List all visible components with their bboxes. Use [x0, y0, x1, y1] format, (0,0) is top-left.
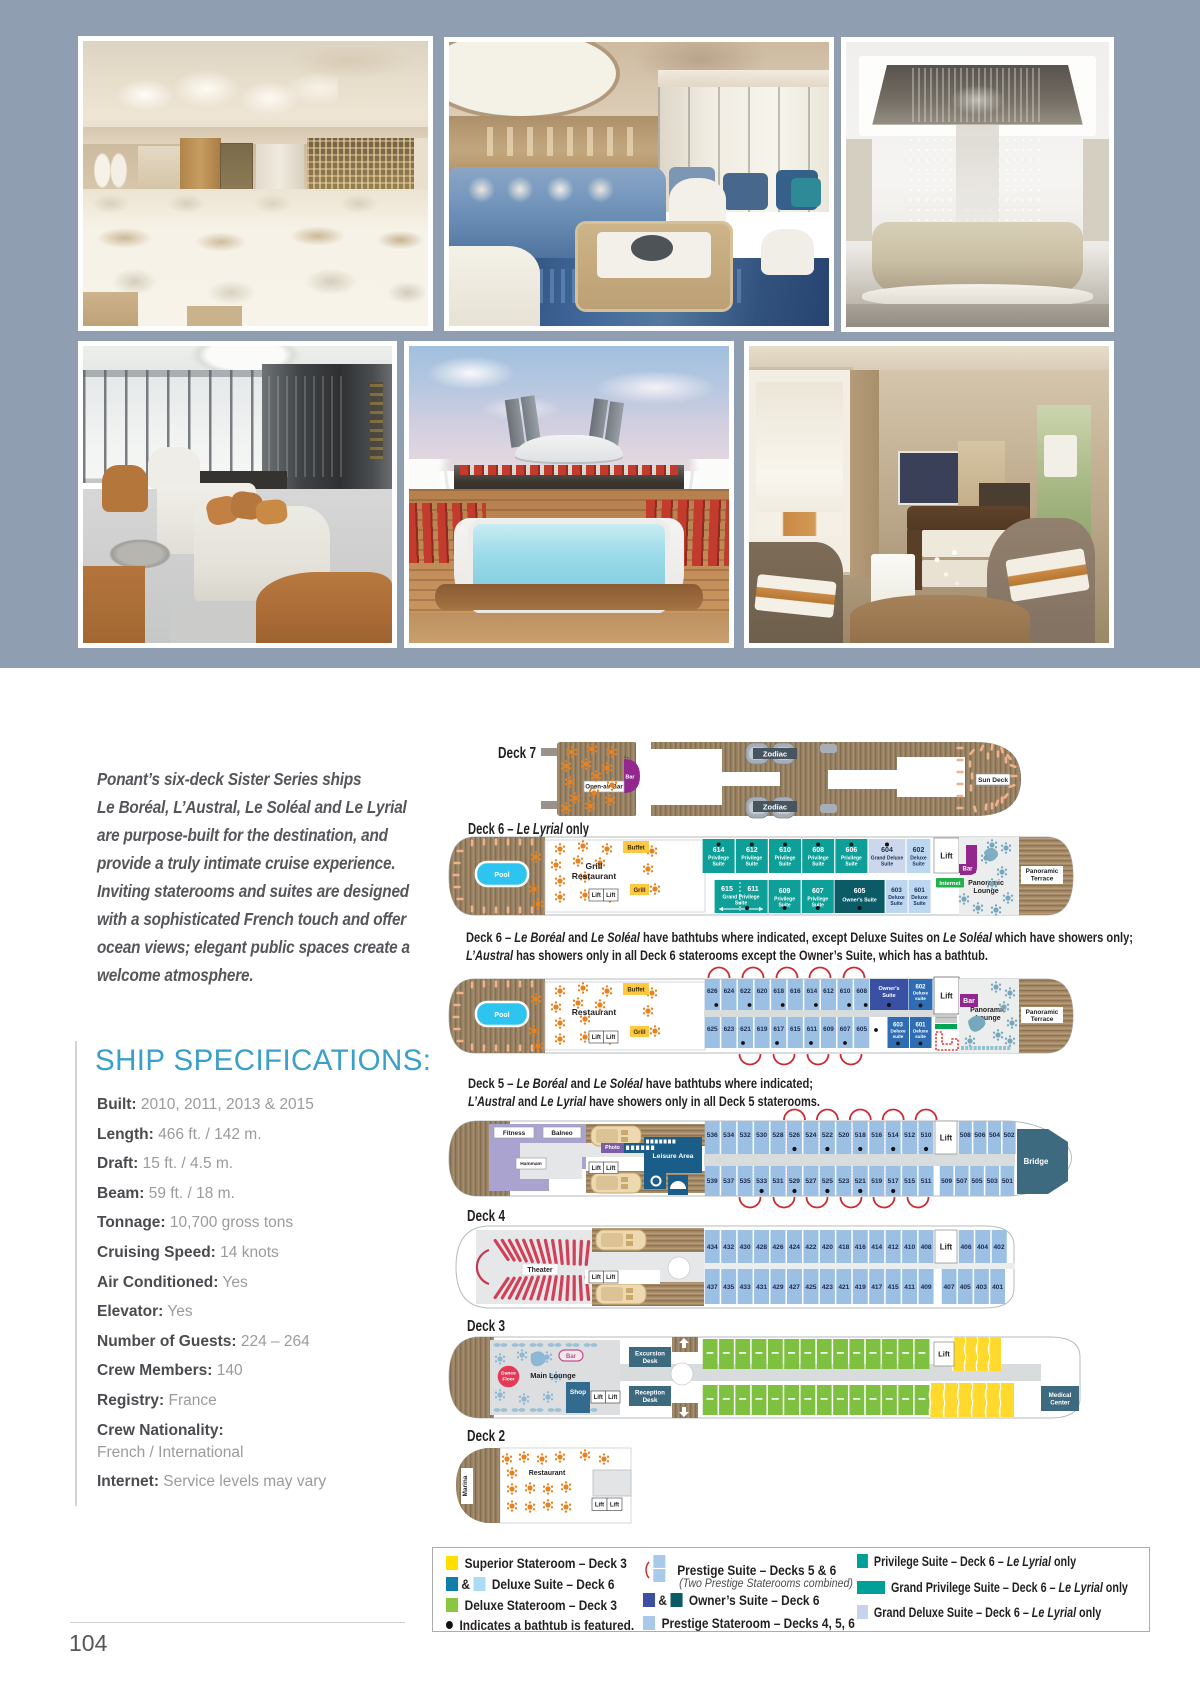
svg-text:Balneo: Balneo: [551, 1130, 572, 1137]
svg-text:619: 619: [757, 1026, 768, 1033]
svg-text:L’Austral has showers only in: L’Austral has showers only in all Deck 6…: [466, 948, 988, 963]
svg-text:Suite: Suite: [779, 862, 791, 868]
svg-text:Suite: Suite: [912, 862, 924, 868]
svg-text:Lift: Lift: [606, 893, 615, 899]
svg-text:512: 512: [904, 1132, 915, 1139]
svg-text:511: 511: [921, 1178, 932, 1185]
svg-text:Pool: Pool: [494, 1012, 509, 1019]
svg-text:Panoramic: Panoramic: [968, 880, 1004, 887]
svg-text:Theater: Theater: [527, 1267, 553, 1274]
svg-text:507: 507: [956, 1178, 967, 1185]
svg-text:528: 528: [773, 1132, 784, 1139]
svg-text:Desk: Desk: [643, 1358, 658, 1365]
svg-text:621: 621: [740, 1026, 751, 1033]
svg-text:503: 503: [987, 1178, 998, 1185]
svg-text:405: 405: [960, 1284, 971, 1291]
svg-text:610: 610: [840, 988, 851, 995]
svg-text:408: 408: [921, 1244, 932, 1251]
svg-text:608: 608: [856, 988, 867, 995]
svg-text:508: 508: [960, 1132, 971, 1139]
svg-text:623: 623: [724, 1026, 735, 1033]
svg-text:403: 403: [976, 1284, 987, 1291]
svg-text:Lift: Lift: [592, 1166, 601, 1172]
svg-text:Lift: Lift: [940, 1242, 953, 1251]
svg-text:Buffet: Buffet: [627, 846, 644, 852]
svg-text:604: 604: [881, 847, 893, 854]
svg-text:515: 515: [904, 1178, 915, 1185]
svg-text:514: 514: [888, 1132, 899, 1139]
svg-text:501: 501: [1002, 1178, 1013, 1185]
svg-text:524: 524: [805, 1132, 816, 1139]
svg-text:434: 434: [707, 1244, 718, 1251]
svg-text:Lift: Lift: [940, 991, 953, 1000]
svg-text:617: 617: [773, 1026, 784, 1033]
svg-text:L’Austral and Le Lyrial have s: L’Austral and Le Lyrial have showers onl…: [468, 1094, 820, 1109]
svg-text:Bar: Bar: [963, 998, 975, 1005]
svg-text:Restaurant: Restaurant: [529, 1470, 566, 1477]
svg-text:Deck 6 – Le Boréal and Le Solé: Deck 6 – Le Boréal and Le Soléal have ba…: [466, 930, 1133, 945]
svg-text:Lift: Lift: [940, 851, 953, 860]
svg-text:504: 504: [989, 1132, 1000, 1139]
svg-text:521: 521: [855, 1178, 866, 1185]
svg-text:Pool: Pool: [494, 872, 509, 879]
svg-text:Deluxe: Deluxe: [890, 1029, 906, 1034]
svg-text:Terrace: Terrace: [1031, 876, 1054, 883]
svg-text:435: 435: [723, 1284, 734, 1291]
svg-text:432: 432: [723, 1244, 734, 1251]
svg-text:Excursion: Excursion: [635, 1350, 665, 1357]
svg-text:suite: suite: [915, 1034, 926, 1039]
svg-text:607: 607: [840, 1026, 851, 1033]
svg-text:Suite: Suite: [712, 862, 724, 868]
svg-text:535: 535: [740, 1178, 751, 1185]
svg-text:Restaurant: Restaurant: [572, 871, 617, 881]
svg-text:411: 411: [904, 1284, 915, 1291]
svg-text:424: 424: [789, 1244, 800, 1251]
svg-text:533: 533: [756, 1178, 767, 1185]
svg-text:517: 517: [888, 1178, 899, 1185]
svg-text:522: 522: [822, 1132, 833, 1139]
svg-text:624: 624: [724, 988, 735, 995]
svg-text:Deck 3: Deck 3: [467, 1318, 505, 1335]
svg-text:Lift: Lift: [610, 1502, 619, 1508]
svg-text:518: 518: [855, 1132, 866, 1139]
svg-text:611: 611: [747, 886, 758, 893]
svg-text:519: 519: [871, 1178, 882, 1185]
svg-text:Suite: Suite: [913, 901, 925, 907]
svg-text:420: 420: [822, 1244, 833, 1251]
svg-text:607: 607: [812, 888, 824, 895]
svg-text:Main Lounge: Main Lounge: [530, 1371, 576, 1380]
svg-text:Panoramic: Panoramic: [1026, 868, 1059, 875]
svg-text:622: 622: [740, 988, 751, 995]
svg-text:510: 510: [921, 1132, 932, 1139]
svg-text:Suite: Suite: [735, 901, 747, 907]
svg-text:418: 418: [838, 1244, 849, 1251]
svg-text:414: 414: [871, 1244, 882, 1251]
svg-text:602: 602: [913, 847, 925, 854]
svg-text:Deluxe: Deluxe: [913, 991, 929, 996]
svg-text:Grill: Grill: [633, 1030, 645, 1036]
svg-text:610: 610: [779, 847, 791, 854]
svg-text:Terrace: Terrace: [1031, 1016, 1054, 1023]
svg-text:Internet: Internet: [939, 881, 960, 887]
svg-text:suite: suite: [893, 1034, 904, 1039]
svg-text:609: 609: [823, 1026, 834, 1033]
svg-text:Lift: Lift: [594, 1395, 603, 1401]
svg-text:421: 421: [838, 1284, 849, 1291]
svg-text:527: 527: [805, 1178, 816, 1185]
svg-text:Suite: Suite: [882, 993, 895, 999]
svg-text:Sun Deck: Sun Deck: [978, 777, 1008, 784]
svg-text:404: 404: [977, 1244, 988, 1251]
svg-text:Deck 5 – Le Boréal and Le Solé: Deck 5 – Le Boréal and Le Soléal have ba…: [468, 1076, 813, 1091]
svg-text:616: 616: [790, 988, 801, 995]
svg-text:614: 614: [807, 988, 818, 995]
svg-text:516: 516: [871, 1132, 882, 1139]
svg-text:Bridge: Bridge: [1024, 1157, 1049, 1166]
svg-text:415: 415: [888, 1284, 899, 1291]
svg-text:Deck 2: Deck 2: [467, 1428, 505, 1445]
svg-text:539: 539: [707, 1178, 718, 1185]
svg-text:Deluxe: Deluxe: [913, 1029, 929, 1034]
svg-text:614: 614: [713, 847, 725, 854]
svg-text:419: 419: [855, 1284, 866, 1291]
svg-text:416: 416: [855, 1244, 866, 1251]
svg-text:603: 603: [891, 887, 902, 894]
svg-text:Grill: Grill: [585, 861, 602, 871]
svg-text:Lounge: Lounge: [973, 888, 998, 895]
svg-text:Hammam: Hammam: [520, 1161, 542, 1167]
svg-text:Lift: Lift: [592, 893, 601, 899]
svg-text:430: 430: [740, 1244, 751, 1251]
svg-text:Suite: Suite: [890, 901, 902, 907]
svg-text:401: 401: [992, 1284, 1003, 1291]
svg-text:410: 410: [904, 1244, 915, 1251]
svg-text:Medical: Medical: [1049, 1392, 1072, 1399]
svg-text:606: 606: [846, 847, 858, 854]
svg-text:Lift: Lift: [938, 1350, 950, 1359]
svg-text:423: 423: [822, 1284, 833, 1291]
svg-text:537: 537: [723, 1178, 734, 1185]
svg-text:Deck 6 – Le Lyrial only: Deck 6 – Le Lyrial only: [468, 821, 589, 838]
svg-text:Lift: Lift: [595, 1502, 604, 1508]
svg-text:suite: suite: [915, 996, 926, 1001]
svg-text:Marina: Marina: [462, 1475, 469, 1496]
svg-text:Reception: Reception: [635, 1389, 665, 1396]
svg-text:609: 609: [779, 888, 791, 895]
svg-text:505: 505: [971, 1178, 982, 1185]
svg-text:534: 534: [723, 1132, 734, 1139]
svg-text:625: 625: [707, 1026, 718, 1033]
svg-text:618: 618: [773, 988, 784, 995]
svg-text:Owner's Suite: Owner's Suite: [842, 898, 876, 904]
svg-text:Lift: Lift: [592, 1035, 601, 1041]
svg-text:520: 520: [838, 1132, 849, 1139]
svg-text:407: 407: [943, 1284, 954, 1291]
svg-text:Bar: Bar: [566, 1354, 577, 1360]
svg-text:402: 402: [993, 1244, 1004, 1251]
svg-text:529: 529: [789, 1178, 800, 1185]
svg-text:525: 525: [822, 1178, 833, 1185]
svg-text:615: 615: [721, 886, 733, 893]
svg-text:Suite: Suite: [881, 862, 893, 868]
svg-text:427: 427: [789, 1284, 800, 1291]
svg-text:431: 431: [756, 1284, 767, 1291]
svg-text:Photo: Photo: [605, 1145, 620, 1151]
svg-text:406: 406: [960, 1244, 971, 1251]
svg-text:Lift: Lift: [606, 1275, 615, 1281]
svg-text:428: 428: [756, 1244, 767, 1251]
svg-text:Owner's: Owner's: [878, 986, 899, 992]
svg-text:532: 532: [740, 1132, 751, 1139]
svg-text:Bar: Bar: [625, 775, 635, 781]
svg-text:437: 437: [707, 1284, 718, 1291]
svg-text:409: 409: [921, 1284, 932, 1291]
svg-text:Lift: Lift: [608, 1395, 617, 1401]
svg-text:530: 530: [756, 1132, 767, 1139]
svg-text:417: 417: [871, 1284, 882, 1291]
svg-text:Grill: Grill: [633, 888, 645, 894]
svg-text:425: 425: [805, 1284, 816, 1291]
svg-text:605: 605: [856, 1026, 867, 1033]
svg-text:502: 502: [1004, 1132, 1015, 1139]
svg-text:509: 509: [941, 1178, 952, 1185]
svg-text:Center: Center: [1050, 1400, 1070, 1407]
svg-text:Bar: Bar: [962, 867, 973, 873]
svg-text:615: 615: [790, 1026, 801, 1033]
svg-text:422: 422: [805, 1244, 816, 1251]
svg-text:620: 620: [757, 988, 768, 995]
svg-text:Suite: Suite: [812, 862, 824, 868]
svg-text:526: 526: [789, 1132, 800, 1139]
svg-text:506: 506: [974, 1132, 985, 1139]
svg-text:536: 536: [707, 1132, 718, 1139]
svg-text:Desk: Desk: [643, 1397, 658, 1404]
svg-text:426: 426: [773, 1244, 784, 1251]
svg-text:Suite: Suite: [845, 862, 857, 868]
svg-text:612: 612: [823, 988, 834, 995]
svg-text:Open-air Bar: Open-air Bar: [585, 784, 623, 791]
svg-text:523: 523: [838, 1178, 849, 1185]
svg-text:601: 601: [914, 887, 925, 894]
svg-text:611: 611: [807, 1026, 818, 1033]
svg-text:608: 608: [812, 847, 824, 854]
svg-text:Deck 7: Deck 7: [498, 745, 536, 762]
svg-text:Floor: Floor: [502, 1377, 514, 1383]
svg-text:Leisure Area: Leisure Area: [653, 1153, 694, 1160]
svg-text:429: 429: [773, 1284, 784, 1291]
svg-text:Lift: Lift: [606, 1035, 615, 1041]
svg-text:Dance: Dance: [501, 1371, 516, 1377]
svg-text:Suite: Suite: [746, 862, 758, 868]
svg-text:605: 605: [854, 888, 866, 895]
svg-text:Deck 4: Deck 4: [467, 1208, 505, 1225]
svg-text:Lift: Lift: [606, 1166, 615, 1172]
svg-text:626: 626: [707, 988, 718, 995]
svg-text:Fitness: Fitness: [503, 1130, 526, 1137]
svg-text:Lift: Lift: [592, 1275, 601, 1281]
svg-text:412: 412: [888, 1244, 899, 1251]
svg-text:Shop: Shop: [570, 1389, 586, 1396]
svg-text:Panoramic: Panoramic: [1026, 1009, 1059, 1016]
svg-text:Restaurant: Restaurant: [572, 1007, 617, 1017]
svg-text:Zodiac: Zodiac: [763, 750, 787, 759]
svg-text:612: 612: [746, 847, 758, 854]
svg-text:Buffet: Buffet: [627, 988, 644, 994]
svg-text:Panoramic: Panoramic: [970, 1007, 1006, 1014]
svg-text:433: 433: [740, 1284, 751, 1291]
svg-text:531: 531: [773, 1178, 784, 1185]
svg-text:Zodiac: Zodiac: [763, 803, 787, 812]
svg-text:Lift: Lift: [940, 1133, 953, 1142]
